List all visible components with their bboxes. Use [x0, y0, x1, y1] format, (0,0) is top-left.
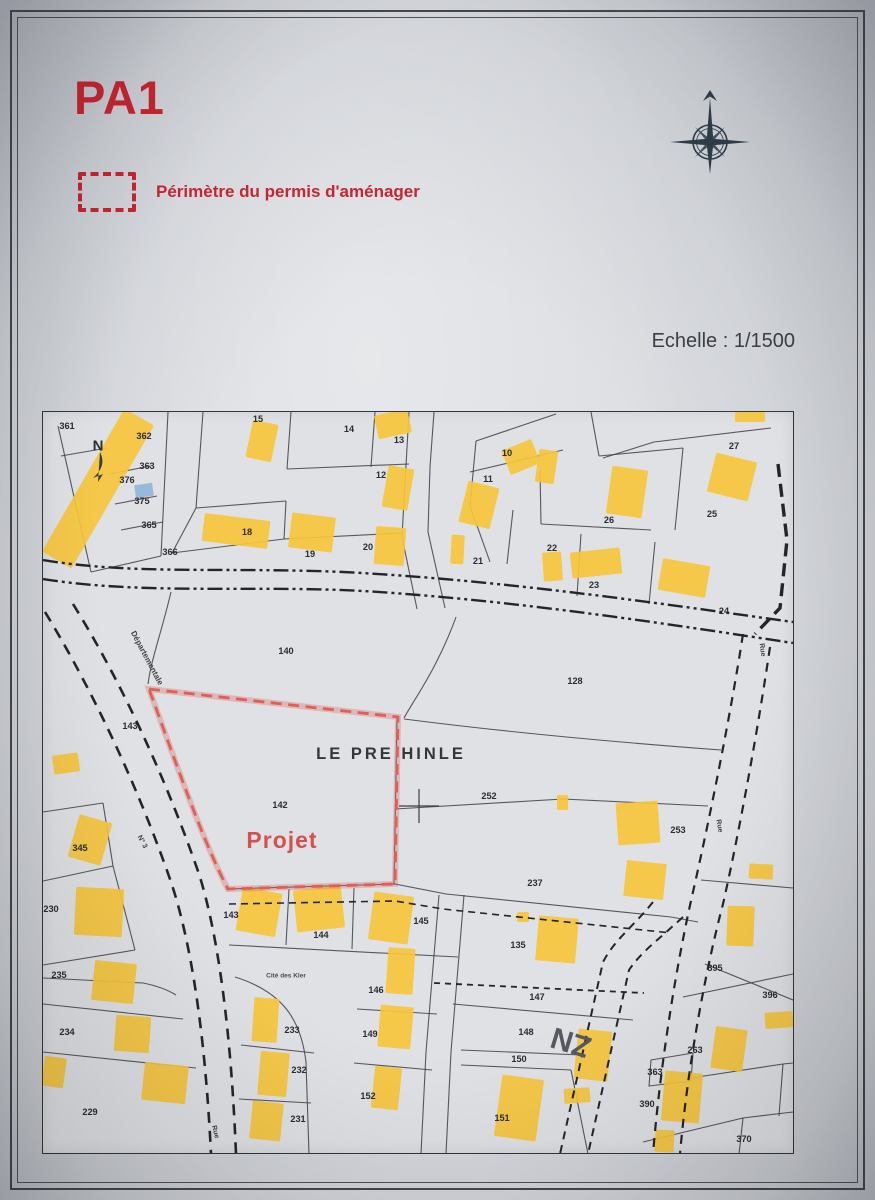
building-footprint: [141, 1062, 189, 1104]
map-label: LE PRE HINLE: [316, 745, 466, 763]
map-label: 12: [376, 470, 386, 480]
parcel-boundary: [453, 1004, 633, 1020]
parcel-boundary: [421, 895, 439, 1153]
building-footprint: [52, 752, 80, 774]
map-label: 23: [589, 580, 599, 590]
perimeter-dashed-rect-icon: [78, 172, 136, 212]
building-footprint: [368, 891, 414, 944]
map-label: Cité des Kler: [266, 973, 306, 980]
building-footprint: [535, 449, 558, 484]
map-label: 25: [707, 509, 717, 519]
building-footprint: [68, 814, 113, 866]
permit-perimeter-outline: [149, 689, 398, 889]
parcel-boundary: [284, 501, 286, 539]
map-label: 143: [122, 721, 137, 731]
parcel-boundary: [404, 617, 456, 718]
map-label: 363: [139, 461, 154, 471]
map-label: 376: [119, 475, 134, 485]
map-label: 370: [736, 1134, 751, 1144]
parcel-boundary: [649, 542, 655, 604]
parcel-boundary: [446, 895, 464, 1153]
map-label: 252: [481, 791, 496, 801]
map-label: 10: [502, 448, 512, 458]
map-label: 234: [59, 1027, 75, 1037]
parcel-boundary: [395, 799, 708, 809]
road-edge-dashed: [755, 464, 787, 634]
parcel-boundary: [476, 414, 556, 441]
parcel-boundary: [591, 412, 599, 456]
building-footprint: [245, 420, 278, 463]
parcel-boundary: [239, 1099, 311, 1103]
parcel-boundary: [428, 467, 430, 532]
parcel-boundary: [161, 412, 168, 556]
map-label: 149: [362, 1029, 377, 1039]
building-footprint: [91, 960, 137, 1004]
map-label: 396: [762, 990, 777, 1000]
map-label: 150: [511, 1054, 526, 1064]
map-label: 135: [510, 940, 525, 950]
parcel-boundary: [779, 1064, 783, 1116]
map-label: 345: [72, 843, 87, 853]
permit-perimeter: [149, 689, 398, 889]
building-footprint: [735, 412, 765, 422]
parcel-boundary: [287, 412, 291, 469]
map-label: N° 3: [136, 834, 150, 850]
map-label: 365: [141, 520, 156, 530]
building-footprint: [764, 1011, 793, 1029]
parcel-boundary: [507, 510, 513, 564]
parcel-boundary: [675, 448, 683, 530]
map-label: 14: [344, 424, 355, 434]
map-label: 27: [729, 441, 739, 451]
map-label: 363: [647, 1067, 662, 1077]
map-label: 19: [305, 549, 315, 559]
map-label: Rue: [210, 1125, 220, 1140]
map-label: N: [93, 438, 104, 455]
map-label: 11: [483, 474, 493, 484]
parcel-boundary: [286, 889, 289, 945]
map-label: 148: [518, 1027, 533, 1037]
parcel-boundary: [43, 1004, 183, 1019]
building-footprint: [623, 860, 667, 900]
parcel-boundary: [352, 888, 354, 949]
building-footprint: [570, 547, 622, 578]
building-footprint: [257, 1051, 290, 1097]
map-label: 140: [278, 646, 293, 656]
building-footprint: [494, 1074, 544, 1141]
building-footprint: [658, 558, 711, 598]
building-footprint: [749, 863, 774, 879]
building-footprint: [114, 1015, 151, 1053]
building-footprint: [542, 551, 563, 581]
building-footprint: [450, 535, 464, 565]
map-label: Rue: [714, 819, 723, 833]
building-footprint: [707, 453, 757, 502]
building-footprint: [374, 526, 407, 566]
map-label: Projet: [246, 827, 317, 853]
parcel-boundary: [371, 412, 375, 467]
building-footprint: [661, 1070, 703, 1123]
survey-marks: [93, 452, 439, 823]
building-footprint: [202, 513, 271, 549]
parcel-boundary: [229, 945, 458, 957]
site-plan-svg: LE PRE HINLEProjetZNNDépartementaleN° 3R…: [43, 412, 793, 1153]
parcel-boundary: [43, 803, 103, 812]
map-label: 128: [567, 676, 582, 686]
building-footprint: [74, 887, 124, 937]
building-footprint: [564, 1087, 591, 1104]
doc-code-title: PA1: [74, 70, 165, 125]
map-label: 142: [272, 800, 287, 810]
map-label: 263: [687, 1045, 702, 1055]
parcel-boundary: [541, 524, 651, 530]
building-footprint: [654, 1130, 674, 1153]
map-label: 253: [670, 825, 685, 835]
building-footprint: [293, 886, 345, 933]
map-label: 395: [707, 963, 722, 973]
parcel-boundary: [43, 866, 113, 881]
map-label: Départementale: [129, 629, 165, 687]
map-label: Rue: [758, 643, 767, 657]
map-label: 390: [639, 1099, 654, 1109]
map-label: 13: [394, 435, 404, 445]
map-label: 362: [136, 431, 151, 441]
legend: Périmètre du permis d'aménager: [78, 172, 420, 212]
building-footprint: [371, 1066, 402, 1111]
building-footprint: [377, 1005, 414, 1050]
building-footprint: [557, 795, 568, 810]
map-label: 21: [473, 556, 483, 566]
building-footprint: [235, 887, 282, 937]
map-label: 143: [223, 910, 238, 920]
parcel-boundary: [430, 412, 434, 467]
building-footprint: [251, 997, 279, 1043]
parcel-boundary: [461, 1065, 571, 1070]
map-label: 15: [253, 414, 263, 424]
map-label: 22: [547, 543, 557, 553]
building-footprint: [458, 481, 499, 529]
map-label: 152: [360, 1091, 375, 1101]
map-label: 18: [242, 527, 252, 537]
building-footprint: [43, 1056, 67, 1089]
map-label: 24: [719, 606, 730, 616]
map-label: 361: [59, 421, 74, 431]
building-footprint: [726, 906, 754, 947]
scale-label: Echelle : 1/1500: [652, 330, 795, 353]
map-label: 229: [82, 1107, 97, 1117]
map-label: 375: [134, 496, 149, 506]
building-footprint: [616, 801, 661, 846]
legend-label: Périmètre du permis d'aménager: [156, 182, 420, 202]
parcel-boundary: [571, 1070, 588, 1153]
compass-rose-icon: [662, 84, 758, 196]
map-label: 235: [51, 970, 66, 980]
map-label: 232: [291, 1065, 306, 1075]
site-plan-map: LE PRE HINLEProjetZNNDépartementaleN° 3R…: [42, 411, 794, 1154]
map-label: 237: [527, 878, 542, 888]
parcel-boundary: [196, 412, 203, 508]
building-footprint: [385, 947, 415, 995]
building-footprint: [288, 512, 336, 552]
building-footprint: [249, 1100, 284, 1141]
map-label: 145: [413, 916, 428, 926]
building-footprint: [710, 1026, 748, 1072]
map-label: 146: [368, 985, 383, 995]
parcel-boundary: [196, 501, 286, 508]
building-footprint: [382, 465, 415, 511]
building-footprint: [535, 915, 579, 963]
map-label: 144: [313, 930, 329, 940]
map-label: 26: [604, 515, 614, 525]
map-label: 20: [363, 542, 373, 552]
parcel-boundary: [701, 880, 793, 888]
map-label: 147: [529, 992, 544, 1002]
map-label: 231: [290, 1114, 305, 1124]
map-label: 151: [494, 1113, 509, 1123]
map-label: 366: [162, 547, 177, 557]
building-footprint: [606, 466, 648, 519]
map-label: 233: [284, 1025, 299, 1035]
map-label: 230: [43, 904, 58, 914]
